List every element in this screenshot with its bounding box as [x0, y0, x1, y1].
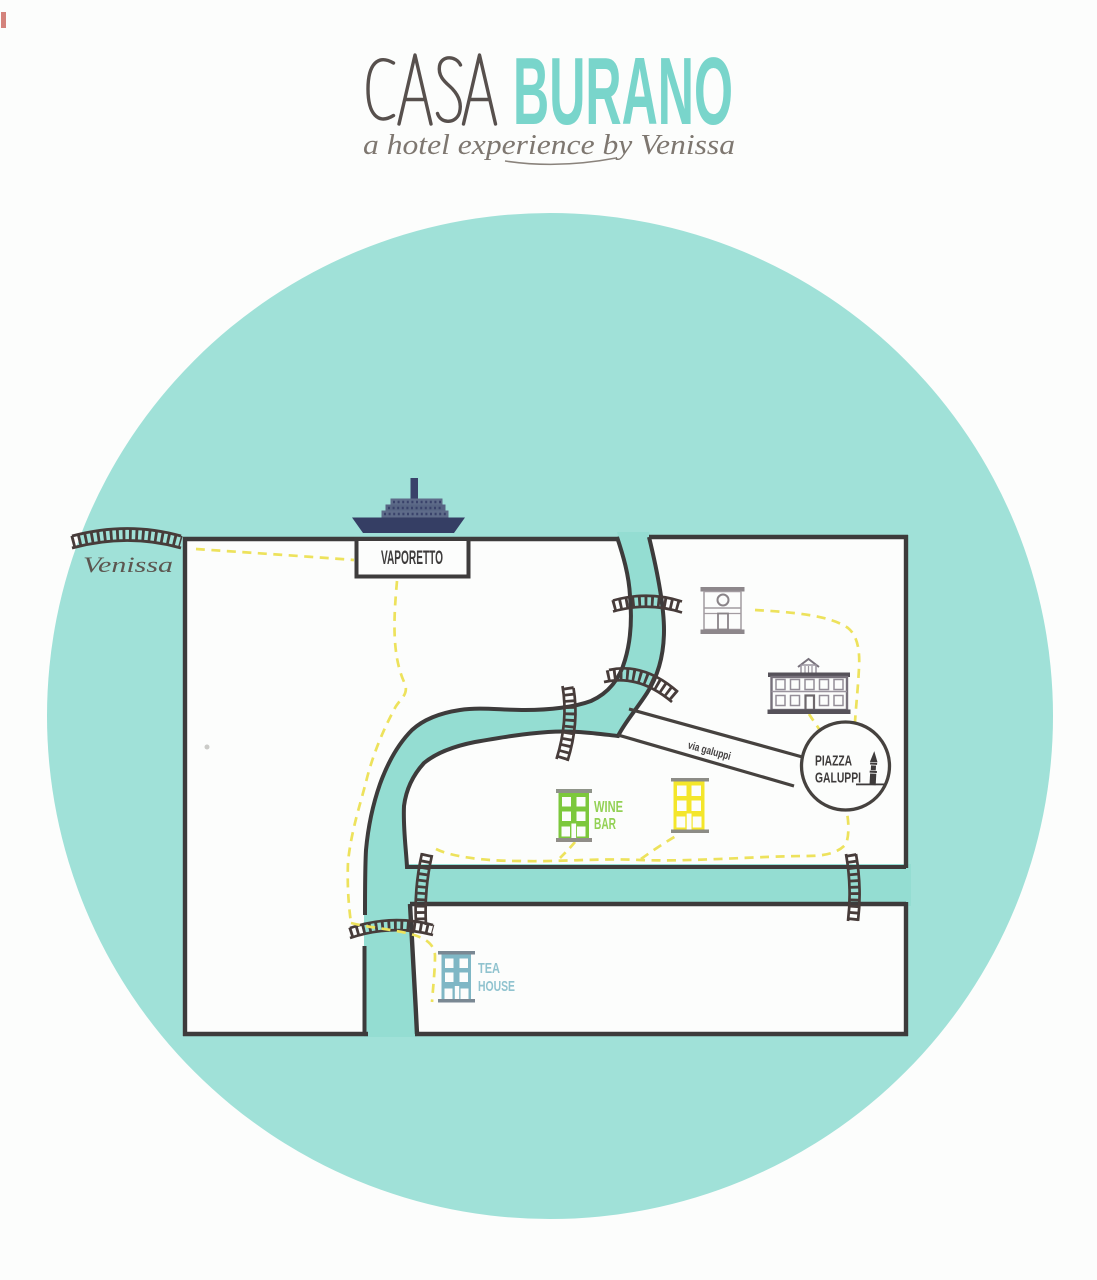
svg-text:PIAZZA: PIAZZA — [815, 753, 852, 770]
svg-text:GALUPPI: GALUPPI — [815, 770, 861, 787]
svg-text:a hotel experience by Venissa: a hotel experience by Venissa — [363, 130, 735, 161]
svg-text:TEA: TEA — [478, 960, 500, 977]
svg-text:HOUSE: HOUSE — [478, 978, 515, 995]
svg-text:VAPORETTO: VAPORETTO — [381, 547, 443, 569]
svg-text:BAR: BAR — [594, 816, 616, 833]
svg-text:BURANO: BURANO — [513, 38, 733, 145]
svg-text:WINE: WINE — [594, 799, 623, 816]
svg-text:Venissa: Venissa — [83, 552, 173, 577]
